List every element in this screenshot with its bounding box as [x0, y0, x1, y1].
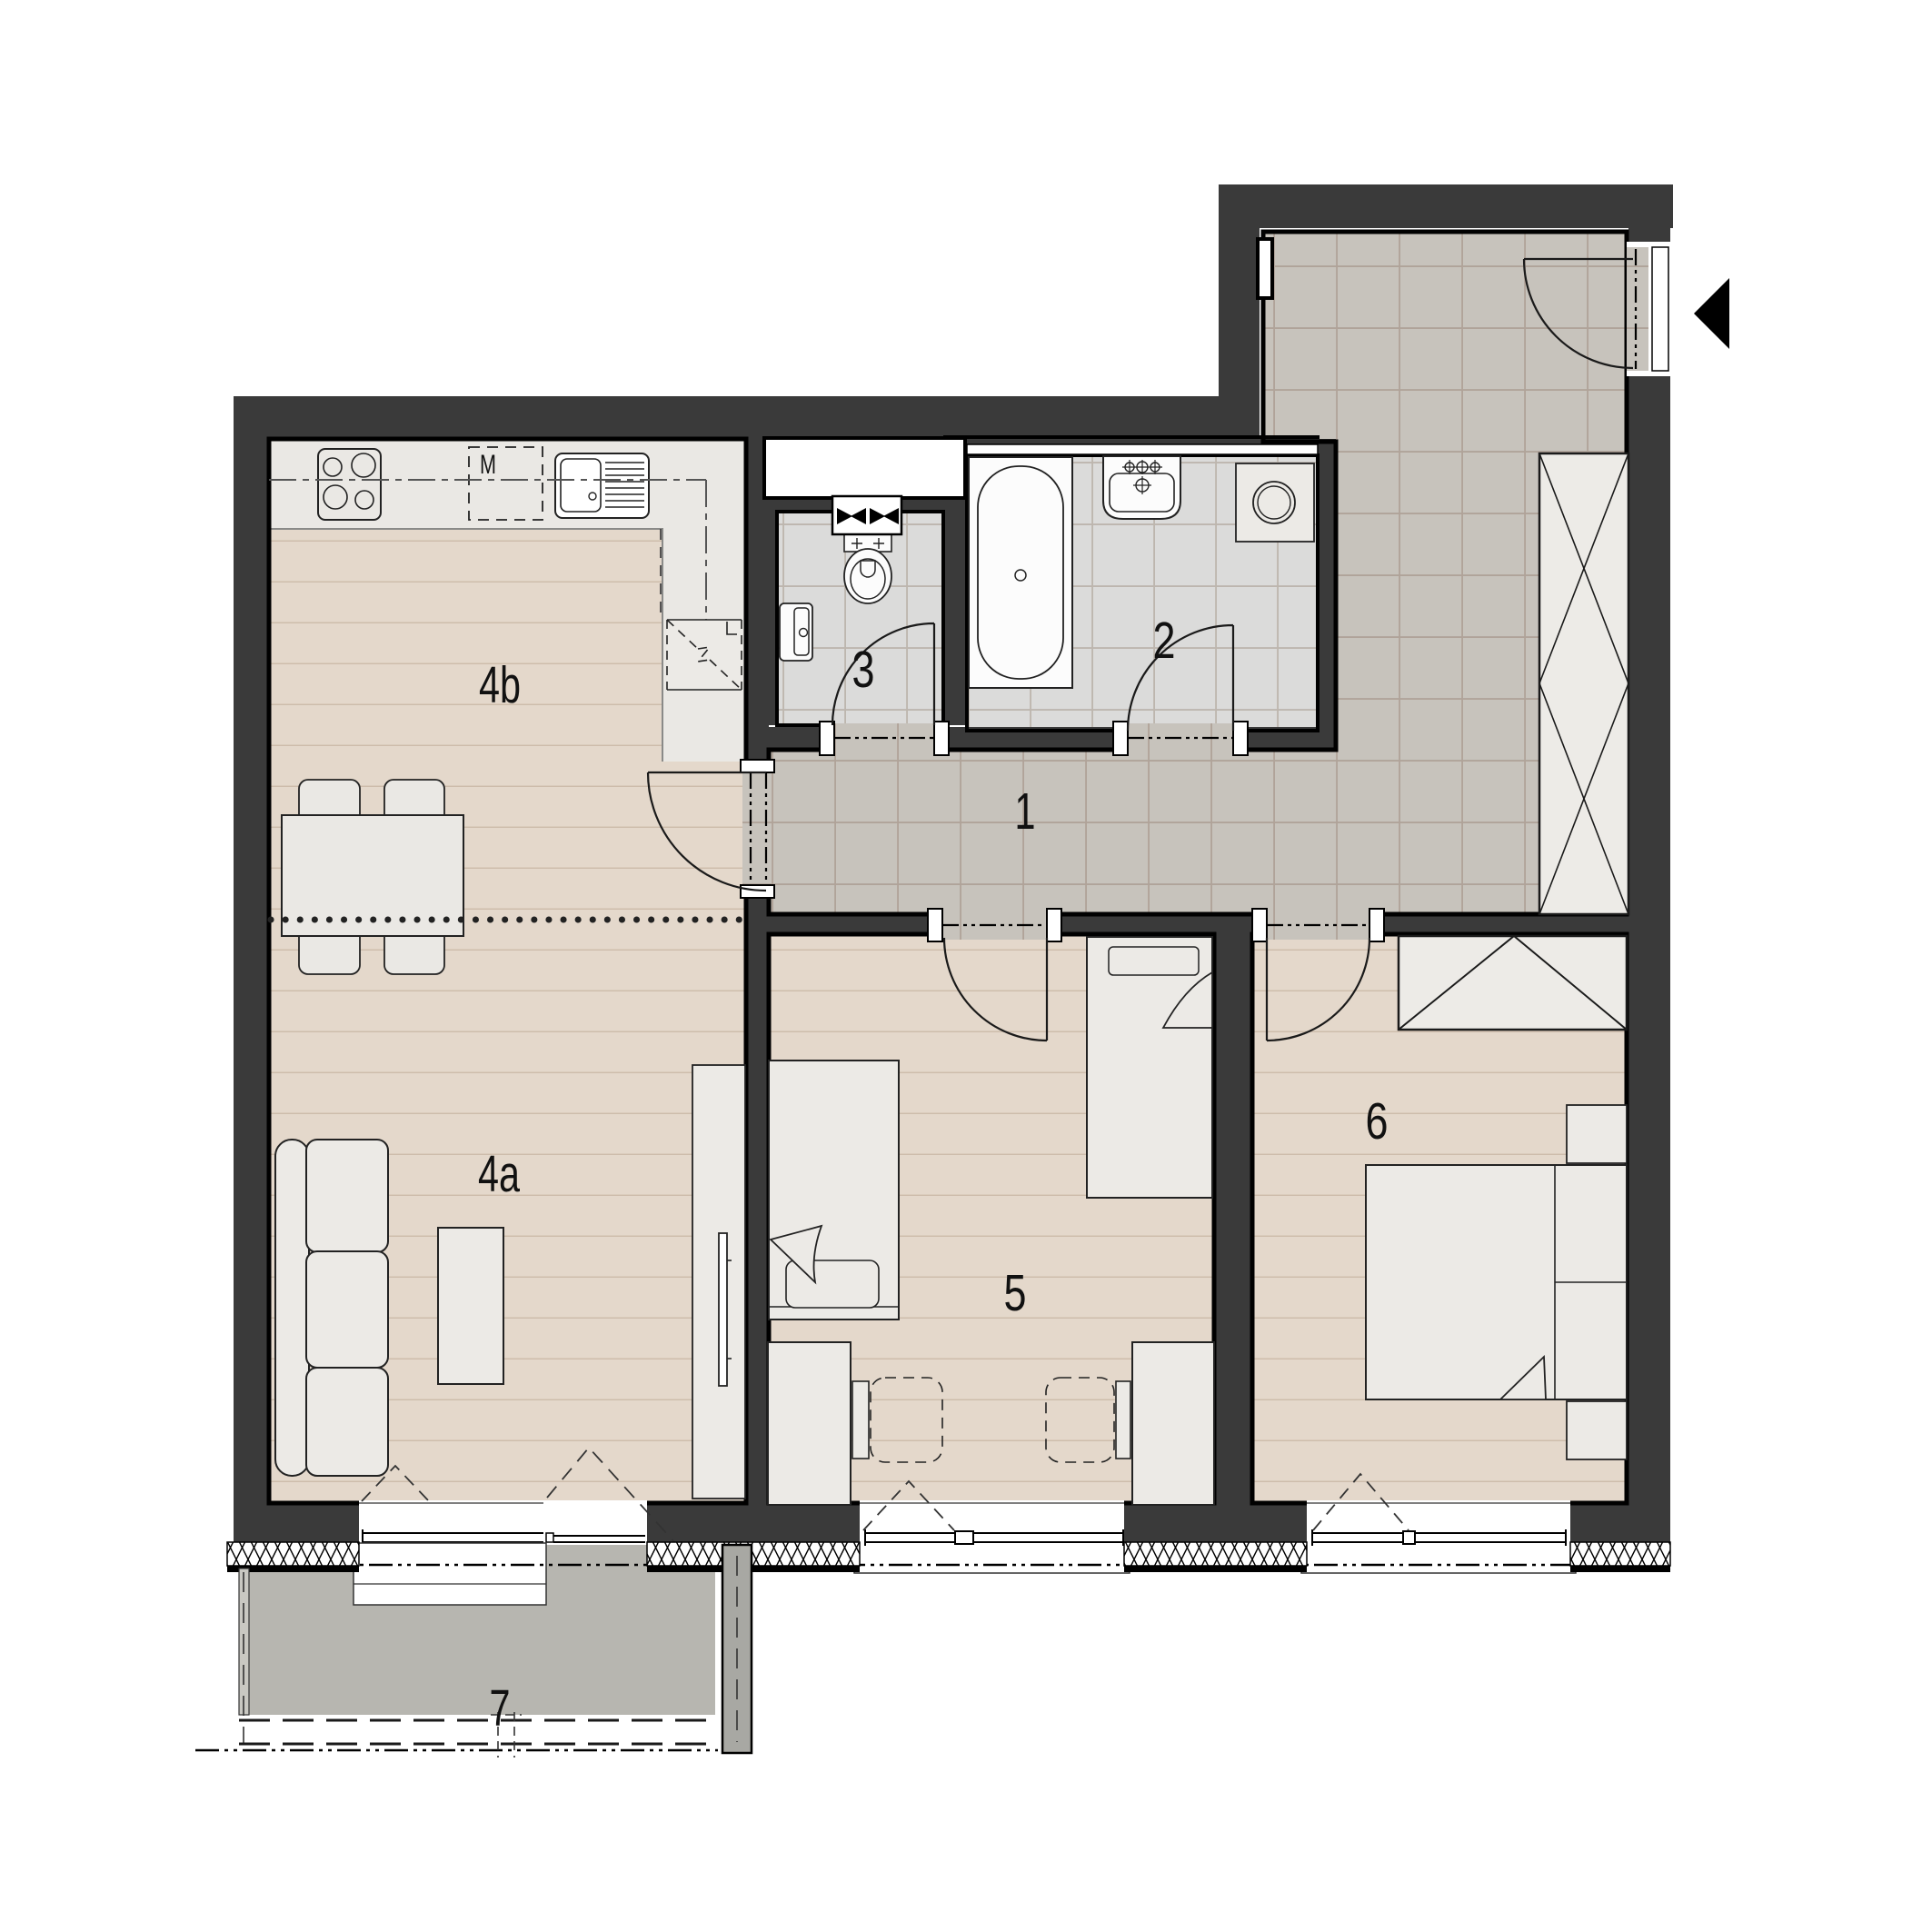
svg-text:4b: 4b: [479, 656, 521, 714]
svg-text:7: 7: [490, 1679, 511, 1738]
svg-text:4a: 4a: [478, 1145, 520, 1203]
svg-text:M: M: [480, 450, 496, 480]
svg-text:1: 1: [1015, 782, 1036, 841]
svg-text:3: 3: [852, 641, 875, 699]
svg-text:2: 2: [1153, 612, 1176, 670]
svg-text:6: 6: [1366, 1092, 1389, 1150]
svg-text:5: 5: [1004, 1264, 1027, 1322]
